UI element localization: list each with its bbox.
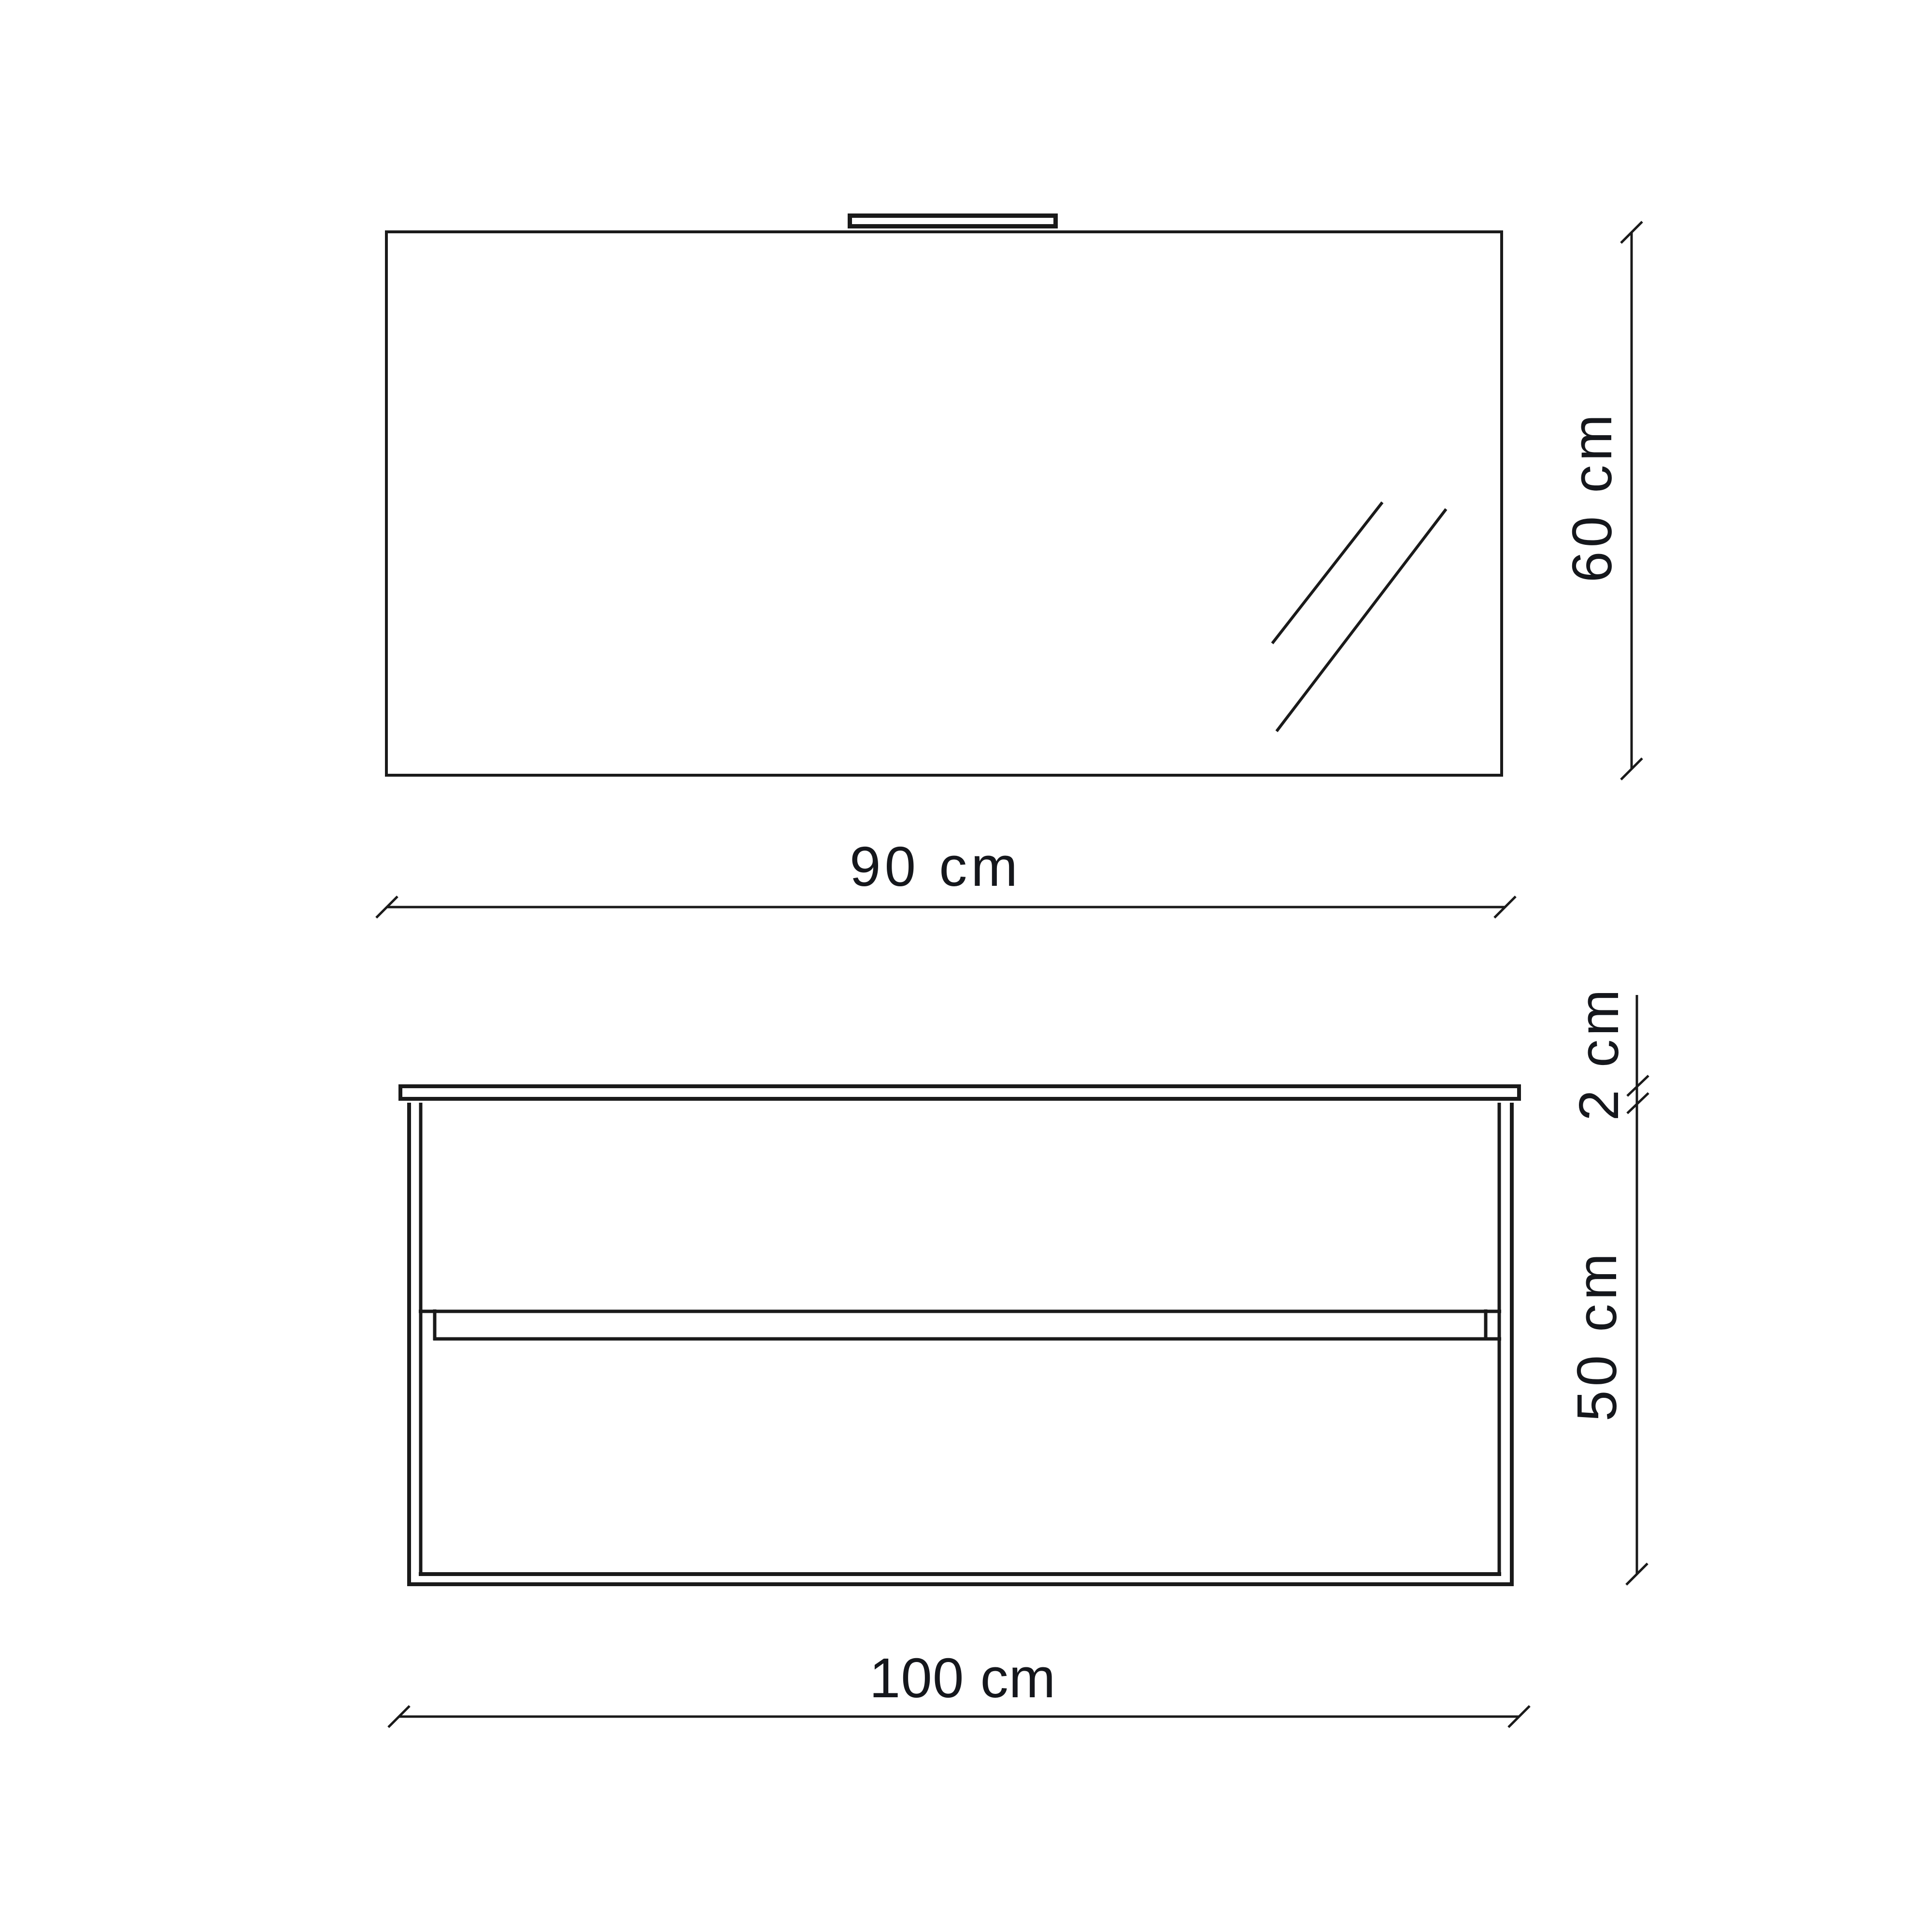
svg-text:90 cm: 90 cm xyxy=(850,835,1022,898)
svg-text:60 cm: 60 cm xyxy=(1561,411,1623,582)
svg-text:100 cm: 100 cm xyxy=(869,1647,1056,1709)
svg-text:50 cm: 50 cm xyxy=(1565,1250,1628,1421)
svg-text:2 cm: 2 cm xyxy=(1567,986,1630,1121)
